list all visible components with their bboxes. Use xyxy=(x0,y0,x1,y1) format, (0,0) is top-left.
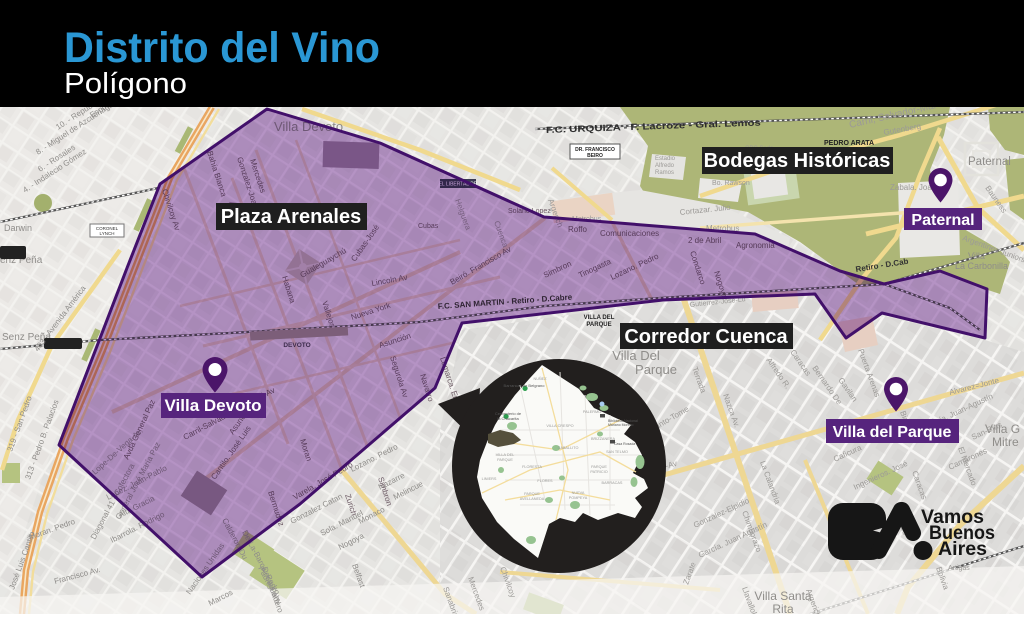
svg-text:Villa Santa: Villa Santa xyxy=(754,589,811,603)
svg-text:Barrancas de Belgrano: Barrancas de Belgrano xyxy=(504,383,546,388)
svg-text:Villa del Parque: Villa del Parque xyxy=(833,424,952,441)
svg-text:NUEVA: NUEVA xyxy=(572,491,585,495)
svg-text:Plaza Arenales: Plaza Arenales xyxy=(221,206,361,228)
svg-text:BEIRO: BEIRO xyxy=(587,153,603,159)
svg-text:CABALLITO: CABALLITO xyxy=(558,446,579,450)
svg-text:Artigas: Artigas xyxy=(948,565,970,572)
svg-text:la Chacarita: la Chacarita xyxy=(497,416,519,421)
svg-text:POMPEYA: POMPEYA xyxy=(569,496,588,500)
svg-text:FLORES: FLORES xyxy=(537,479,553,483)
svg-text:Parque: Parque xyxy=(635,362,677,377)
svg-text:FLORESTA: FLORESTA xyxy=(522,465,542,469)
svg-text:Villa Del: Villa Del xyxy=(612,348,660,363)
svg-text:Polígono: Polígono xyxy=(64,68,187,100)
svg-text:PARQUE: PARQUE xyxy=(591,465,607,469)
svg-text:PALERMO: PALERMO xyxy=(583,410,601,414)
svg-text:VILLA DEL: VILLA DEL xyxy=(584,315,615,321)
svg-text:Estadio: Estadio xyxy=(655,156,676,162)
svg-text:Rita: Rita xyxy=(772,602,794,614)
svg-text:Bo. Rawson: Bo. Rawson xyxy=(712,180,750,187)
svg-text:Paternal: Paternal xyxy=(911,212,974,229)
svg-text:Distrito del Vino: Distrito del Vino xyxy=(64,24,380,72)
svg-text:PEDRO ARATA: PEDRO ARATA xyxy=(824,140,874,147)
svg-text:Darwin: Darwin xyxy=(4,223,32,233)
svg-text:LYNCH: LYNCH xyxy=(100,231,115,236)
svg-text:Bodegas Históricas: Bodegas Históricas xyxy=(704,150,891,172)
svg-text:Ramos: Ramos xyxy=(655,170,674,176)
svg-text:VILLA DEL: VILLA DEL xyxy=(496,453,515,457)
svg-text:NUÑEZ: NUÑEZ xyxy=(533,376,547,381)
svg-text:LINIERS: LINIERS xyxy=(482,477,497,481)
svg-text:PARQUE: PARQUE xyxy=(586,322,611,328)
svg-text:Villa: Villa xyxy=(968,251,985,261)
svg-text:BARRACAS: BARRACAS xyxy=(602,481,623,485)
svg-text:AVELLANEDA: AVELLANEDA xyxy=(520,497,545,501)
svg-text:Mariano Moreno: Mariano Moreno xyxy=(608,423,634,427)
svg-text:Alfredo: Alfredo xyxy=(655,163,675,169)
svg-text:Paternal: Paternal xyxy=(968,156,1011,168)
svg-text:Villa Devoto: Villa Devoto xyxy=(165,396,262,415)
svg-text:Corredor Cuenca: Corredor Cuenca xyxy=(624,326,788,348)
svg-text:PARQUE: PARQUE xyxy=(524,492,540,496)
svg-text:Aires: Aires xyxy=(938,539,987,560)
svg-text:PATRICIO: PATRICIO xyxy=(590,470,607,474)
svg-text:PARQUE: PARQUE xyxy=(497,458,513,462)
svg-text:Casa Rosada: Casa Rosada xyxy=(614,442,635,446)
svg-text:VILLA CRESPO: VILLA CRESPO xyxy=(546,424,573,428)
svg-text:Mitre: Mitre xyxy=(992,435,1019,449)
svg-text:La Carbonilla: La Carbonilla xyxy=(955,261,1008,271)
svg-text:SAN TELMO: SAN TELMO xyxy=(606,450,628,454)
